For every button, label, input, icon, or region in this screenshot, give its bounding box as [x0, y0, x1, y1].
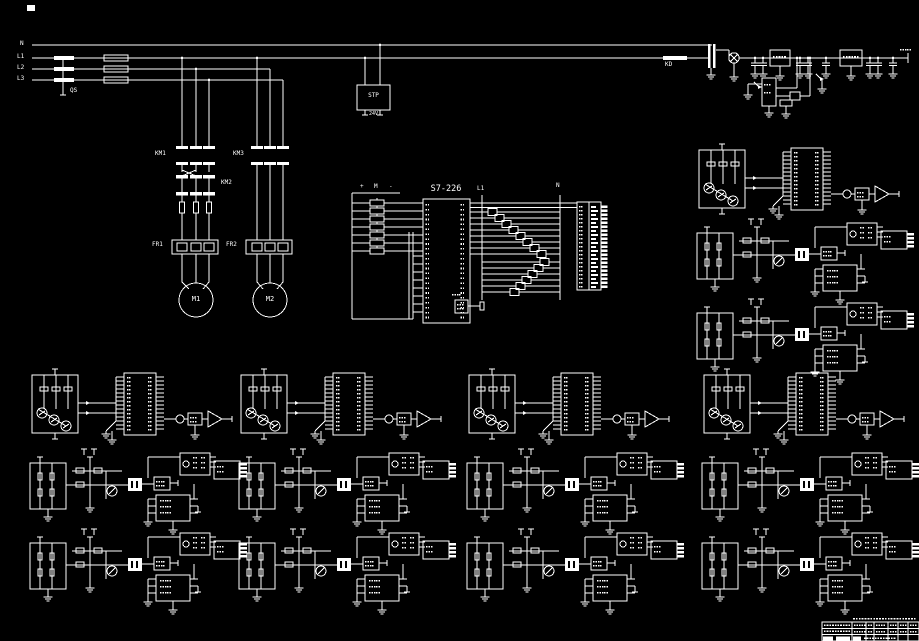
overload-fr2-label: FR2 — [226, 242, 237, 248]
contactor-km2-label: KM2 — [221, 180, 232, 186]
plc-rail-l1-label: L1 — [477, 186, 484, 192]
plc-rail-n-label: N — [556, 183, 560, 189]
motor-m2-label: M2 — [256, 296, 284, 303]
overload-fr1-label: FR1 — [152, 242, 163, 248]
output-ladder — [470, 195, 577, 300]
contactor-km1-label: KM1 — [155, 151, 166, 157]
title-block — [822, 618, 919, 641]
line-fuse-label: KD — [665, 62, 672, 68]
motor-branch-2 — [246, 143, 292, 317]
rail-label-l2: L2 — [17, 65, 24, 71]
cad-schematic-screenshot: N L1 L2 L3 QS KD KM1 KM2 KM3 FR1 FR2 M1 … — [0, 0, 919, 641]
power-supply — [703, 44, 911, 118]
module-group-4 — [702, 369, 919, 614]
button-bus-minus-label: - — [389, 184, 393, 190]
control-buttons — [352, 193, 423, 319]
motor-branch-1 — [172, 143, 218, 317]
module-group-5 — [697, 144, 914, 384]
psu-ac-box — [357, 44, 390, 115]
schematic-canvas — [0, 0, 919, 641]
terminal-strip — [577, 202, 608, 290]
module-group-2 — [239, 369, 456, 614]
button-bus-mid-label: M — [374, 184, 378, 190]
rail-label-l1: L1 — [17, 54, 24, 60]
psu-module-label: STP — [357, 93, 390, 99]
psu-module-sublabel: 24V — [357, 112, 390, 117]
disconnect-switch-label: QS — [70, 88, 77, 94]
rail-label-l3: L3 — [17, 76, 24, 82]
module-group-1 — [30, 369, 247, 614]
stray-mark — [27, 5, 35, 11]
plc-title: S7-226 — [418, 185, 474, 194]
rail-label-n: N — [20, 41, 24, 47]
motor-m1-label: M1 — [182, 296, 210, 303]
button-bus-plus-label: + — [360, 184, 364, 190]
module-group-3 — [467, 369, 684, 614]
contactor-km3-label: KM3 — [233, 151, 244, 157]
